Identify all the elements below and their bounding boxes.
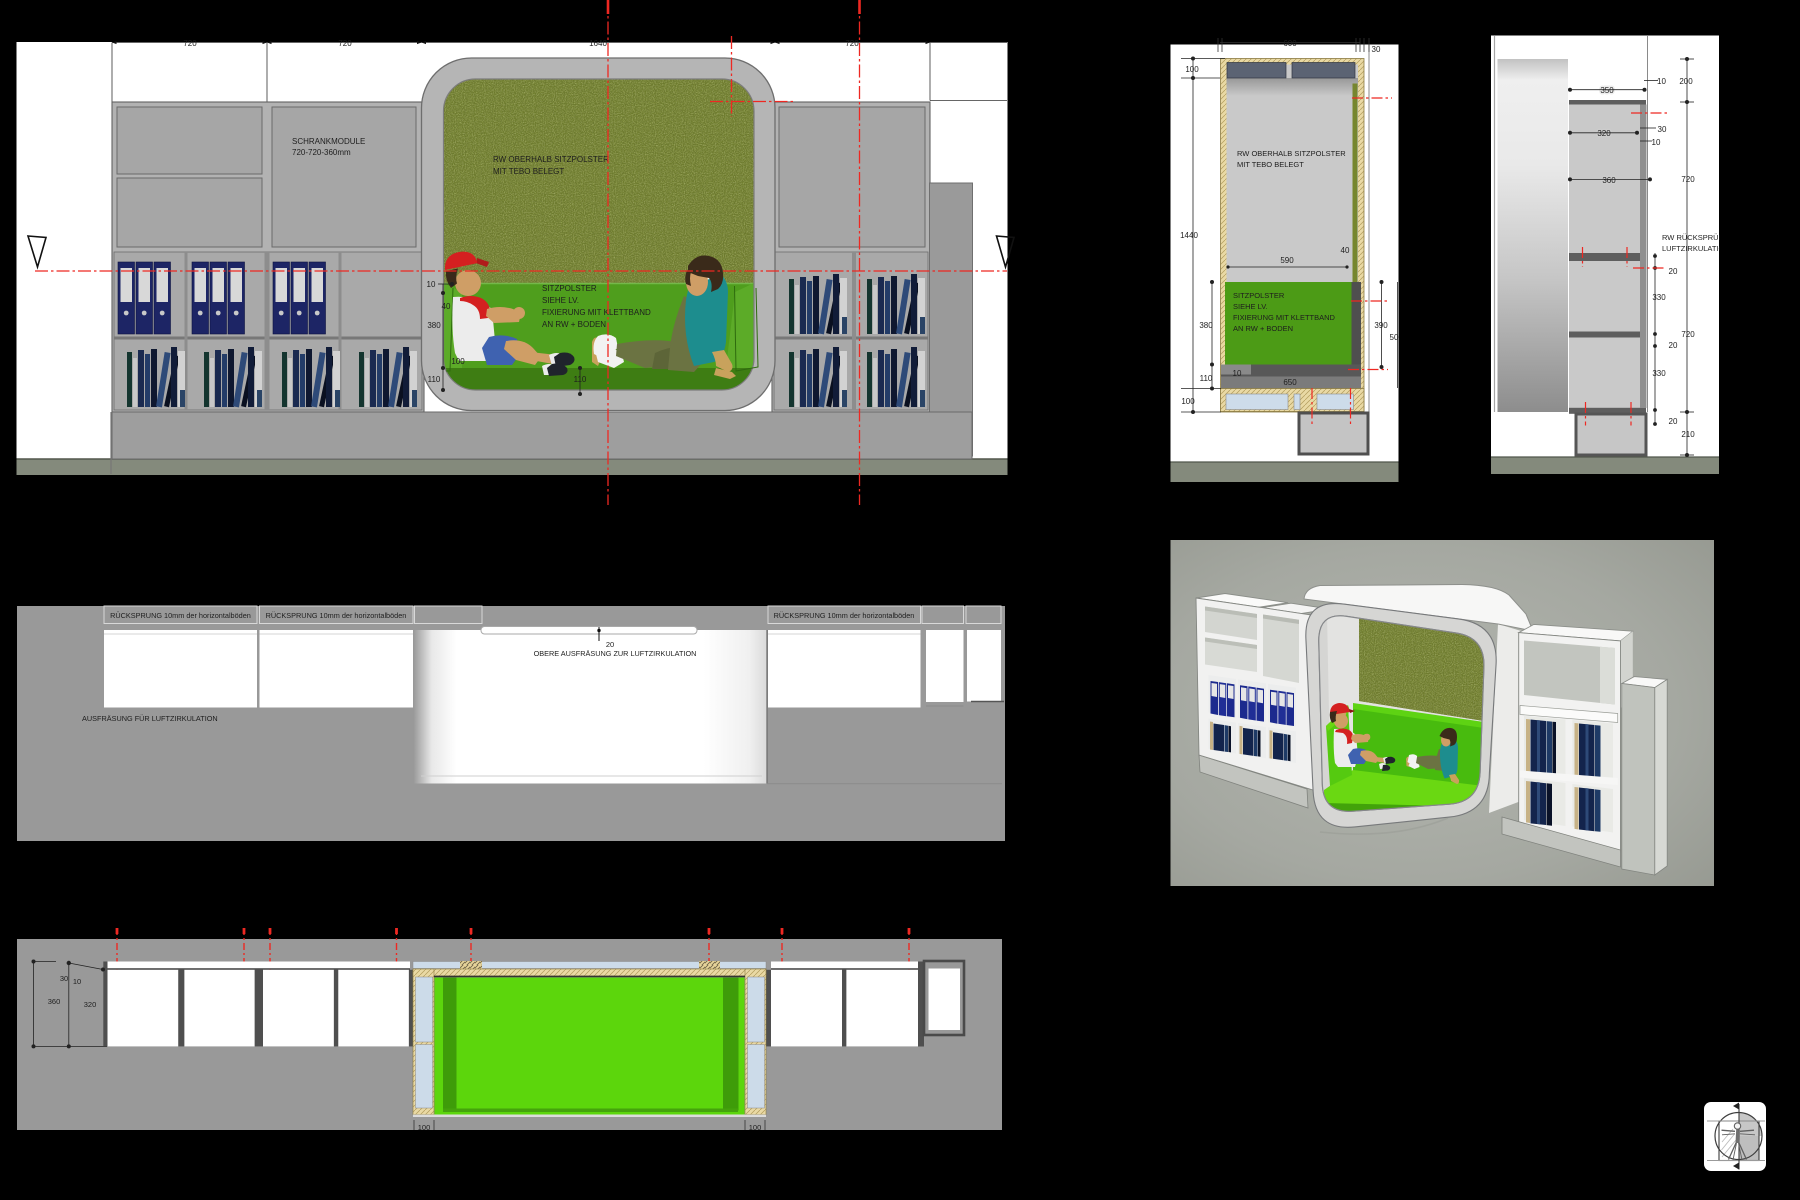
svg-text:320: 320 (84, 1000, 97, 1009)
svg-text:1440: 1440 (1180, 231, 1198, 240)
svg-text:FIXIERUNG MIT KLETTBAND: FIXIERUNG MIT KLETTBAND (542, 308, 651, 317)
svg-text:100: 100 (749, 1123, 762, 1132)
svg-text:30: 30 (60, 974, 68, 983)
svg-text:RÜCKSPRUNG 10mm der horizontal: RÜCKSPRUNG 10mm der horizontalböden (266, 611, 407, 620)
svg-text:AUSFRÄSUNG FÜR LUFTZIRKULATION: AUSFRÄSUNG FÜR LUFTZIRKULATION (82, 714, 218, 723)
svg-text:SIEHE LV.: SIEHE LV. (1233, 302, 1268, 311)
svg-text:MIT TEBO BELEGT: MIT TEBO BELEGT (493, 167, 564, 176)
svg-text:1640: 1640 (589, 39, 607, 48)
svg-text:330: 330 (1652, 293, 1666, 302)
svg-text:720: 720 (183, 39, 197, 48)
svg-text:20: 20 (1669, 267, 1678, 276)
svg-text:720: 720 (845, 39, 859, 48)
svg-text:RÜCKSPRUNG 10mm der horizontal: RÜCKSPRUNG 10mm der horizontalböden (110, 611, 251, 620)
svg-text:20: 20 (1669, 341, 1678, 350)
svg-text:RÜCKSPRUNG 10mm der horizontal: RÜCKSPRUNG 10mm der horizontalböden (774, 611, 915, 620)
svg-text:20: 20 (1669, 417, 1678, 426)
svg-text:100: 100 (451, 357, 465, 366)
svg-text:590: 590 (1280, 256, 1294, 265)
svg-text:AN RW + BODEN: AN RW + BODEN (542, 320, 606, 329)
svg-text:FIXIERUNG MIT KLETTBAND: FIXIERUNG MIT KLETTBAND (1233, 313, 1336, 322)
svg-text:600: 600 (1283, 39, 1297, 48)
svg-text:SITZPOLSTER: SITZPOLSTER (542, 284, 597, 293)
svg-text:100: 100 (1185, 65, 1199, 74)
svg-text:OBERE AUSFRÄSUNG ZUR LUFTZIRKU: OBERE AUSFRÄSUNG ZUR LUFTZIRKULATION (534, 649, 697, 658)
svg-text:320: 320 (1597, 129, 1611, 138)
svg-text:650: 650 (1283, 378, 1297, 387)
svg-text:10: 10 (73, 977, 81, 986)
svg-text:110: 110 (428, 375, 441, 384)
svg-text:330: 330 (1652, 369, 1666, 378)
svg-text:30: 30 (1658, 125, 1667, 134)
svg-text:720: 720 (1681, 330, 1695, 339)
svg-text:720: 720 (1681, 175, 1695, 184)
svg-text:10: 10 (427, 280, 436, 289)
svg-text:110: 110 (1200, 374, 1213, 383)
svg-text:AN RW + BODEN: AN RW + BODEN (1233, 324, 1293, 333)
svg-text:380: 380 (1199, 321, 1213, 330)
svg-text:200: 200 (1679, 77, 1693, 86)
svg-text:10: 10 (1652, 138, 1661, 147)
svg-text:MIT TEBO BELEGT: MIT TEBO BELEGT (1237, 160, 1304, 169)
svg-text:40: 40 (1341, 246, 1350, 255)
svg-text:30: 30 (1372, 45, 1381, 54)
svg-text:360: 360 (48, 997, 61, 1006)
svg-text:210: 210 (1681, 430, 1695, 439)
svg-text:380: 380 (427, 321, 441, 330)
svg-text:SCHRANKMODULE: SCHRANKMODULE (292, 137, 365, 146)
svg-text:RW OBERHALB SITZPOLSTER: RW OBERHALB SITZPOLSTER (493, 155, 609, 164)
svg-text:20: 20 (606, 640, 614, 649)
svg-text:360: 360 (1602, 176, 1616, 185)
svg-text:350: 350 (1600, 86, 1614, 95)
svg-text:SIEHE LV.: SIEHE LV. (542, 296, 579, 305)
svg-text:RW OBERHALB SITZPOLSTER: RW OBERHALB SITZPOLSTER (1237, 149, 1346, 158)
svg-text:10: 10 (1233, 369, 1242, 378)
svg-text:720: 720 (338, 39, 352, 48)
svg-text:SITZPOLSTER: SITZPOLSTER (1233, 291, 1285, 300)
svg-text:720-720-360mm: 720-720-360mm (292, 148, 351, 157)
svg-text:10: 10 (1657, 77, 1666, 86)
svg-text:100: 100 (418, 1123, 431, 1132)
